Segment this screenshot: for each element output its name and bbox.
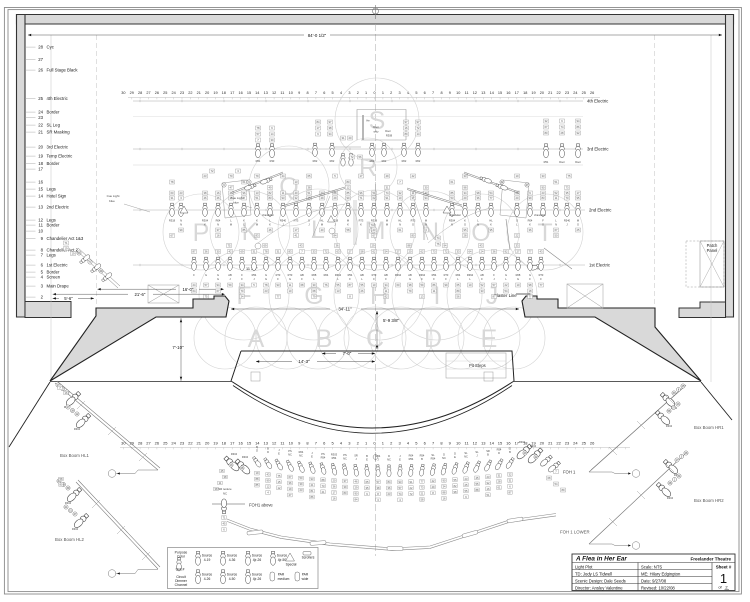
svg-text:NC: NC	[223, 492, 227, 496]
svg-text:G: G	[409, 277, 411, 281]
svg-text:25: 25	[577, 228, 580, 232]
svg-text:T: T	[537, 219, 552, 247]
svg-text:R04: R04	[324, 273, 329, 277]
svg-text:R54: R54	[348, 273, 353, 277]
svg-text:23: 23	[321, 191, 324, 195]
svg-text:Source: Source	[227, 554, 238, 558]
svg-text:11: 11	[385, 289, 388, 293]
svg-text:ME: Hilary Edgington: ME: Hilary Edgington	[641, 571, 681, 576]
svg-text:15: 15	[38, 187, 43, 192]
svg-text:89: 89	[405, 132, 408, 136]
svg-text:24: 24	[573, 441, 578, 446]
svg-text:R73: R73	[411, 219, 416, 223]
svg-text:R54: R54	[321, 455, 326, 459]
svg-text:98: 98	[477, 191, 480, 195]
svg-text:E: E	[454, 455, 456, 459]
svg-text:20: 20	[333, 479, 336, 483]
svg-text:R308: R308	[386, 134, 393, 138]
svg-text:13: 13	[38, 205, 43, 210]
svg-text:93: 93	[311, 477, 314, 481]
svg-text:85: 85	[451, 191, 454, 195]
svg-text:86: 86	[577, 125, 580, 129]
svg-text:N: N	[180, 223, 182, 227]
svg-text:R04: R04	[456, 273, 461, 277]
svg-text:R304: R304	[74, 427, 81, 431]
svg-text:73: 73	[433, 250, 436, 254]
svg-text:67: 67	[555, 228, 558, 232]
svg-text:Date: 9/27/08: Date: 9/27/08	[641, 578, 667, 583]
svg-text:30: 30	[217, 250, 220, 254]
svg-text:24: 24	[171, 91, 175, 95]
svg-text:3rd Electric: 3rd Electric	[47, 145, 69, 150]
svg-text:R318: R318	[169, 219, 176, 223]
svg-text:P: P	[193, 219, 210, 247]
svg-text:35: 35	[366, 486, 369, 490]
svg-text:65: 65	[308, 174, 311, 178]
svg-text:51: 51	[308, 191, 311, 195]
svg-text:17: 17	[295, 228, 298, 232]
svg-text:75: 75	[228, 244, 231, 248]
svg-text:16: 16	[487, 487, 490, 491]
svg-text:R08: R08	[312, 273, 317, 277]
svg-text:14: 14	[490, 91, 494, 95]
svg-text:R51: R51	[544, 160, 549, 164]
svg-text:33: 33	[457, 250, 460, 254]
svg-text:36: 36	[477, 196, 480, 200]
svg-text:77: 77	[490, 196, 493, 200]
svg-text:G: G	[217, 277, 219, 281]
svg-text:11: 11	[219, 481, 222, 485]
svg-text:82: 82	[269, 191, 272, 195]
svg-text:E: E	[481, 325, 498, 353]
svg-text:Box Boom HR2: Box Boom HR2	[694, 498, 724, 503]
svg-text:86: 86	[311, 495, 314, 499]
svg-text:10: 10	[289, 91, 293, 95]
svg-text:67: 67	[289, 475, 292, 479]
svg-text:chandelier: chandelier	[262, 213, 274, 217]
svg-text:R73: R73	[288, 273, 293, 277]
svg-text:67: 67	[171, 234, 174, 238]
svg-text:SR: SR	[354, 454, 358, 458]
svg-text:75: 75	[568, 174, 571, 178]
svg-text:2: 2	[390, 91, 392, 95]
svg-text:TD: Jody LS Tidwell: TD: Jody LS Tidwell	[575, 571, 612, 576]
svg-text:3rd Electric: 3rd Electric	[587, 147, 609, 152]
svg-text:28: 28	[561, 131, 564, 135]
svg-text:14: 14	[255, 441, 260, 446]
svg-text:R73: R73	[359, 219, 364, 223]
svg-text:97: 97	[417, 120, 420, 124]
svg-text:13: 13	[481, 441, 486, 446]
svg-text:Screen: Screen	[47, 275, 61, 280]
svg-text:E: E	[311, 455, 313, 459]
svg-text:77: 77	[529, 295, 532, 299]
svg-text:27: 27	[397, 250, 400, 254]
svg-text:10: 10	[289, 441, 294, 446]
svg-text:11: 11	[289, 283, 292, 287]
svg-text:38: 38	[224, 475, 227, 479]
svg-text:80: 80	[412, 234, 415, 238]
svg-text:36: 36	[388, 486, 391, 490]
svg-text:26: 26	[38, 68, 43, 73]
svg-text:73: 73	[421, 486, 424, 490]
svg-text:HB: HB	[360, 273, 364, 277]
svg-text:wkly: wkly	[373, 130, 379, 134]
svg-text:38: 38	[204, 191, 207, 195]
svg-text:26: 26	[590, 441, 595, 446]
svg-text:32: 32	[545, 119, 548, 123]
svg-text:25: 25	[582, 91, 586, 95]
svg-text:5'-9 3/8": 5'-9 3/8"	[383, 318, 400, 323]
svg-text:51: 51	[487, 493, 490, 497]
svg-text:D: D	[267, 450, 269, 454]
svg-text:10: 10	[516, 174, 519, 178]
svg-text:74: 74	[386, 191, 389, 195]
svg-text:blue: blue	[109, 199, 115, 203]
svg-text:33: 33	[481, 289, 484, 293]
svg-text:36: 36	[205, 250, 208, 254]
svg-text:26: 26	[155, 91, 159, 95]
svg-text:20: 20	[540, 91, 544, 95]
svg-text:M: M	[321, 223, 323, 227]
svg-text:G: G	[517, 277, 519, 281]
svg-text:1: 1	[365, 91, 367, 95]
svg-text:G: G	[505, 273, 507, 277]
svg-text:O: O	[471, 219, 490, 247]
svg-text:A: A	[248, 325, 265, 353]
svg-text:97: 97	[405, 120, 408, 124]
svg-text:HL: HL	[489, 219, 493, 223]
svg-text:11: 11	[555, 196, 558, 200]
svg-text:K: K	[490, 223, 492, 227]
svg-text:29: 29	[334, 196, 337, 200]
svg-text:17: 17	[317, 126, 320, 130]
svg-text:5'-6": 5'-6"	[64, 296, 73, 301]
svg-text:R02: R02	[416, 159, 421, 163]
svg-text:Border: Border	[47, 223, 60, 228]
svg-text:R73: R73	[539, 273, 544, 277]
svg-text:51: 51	[555, 180, 558, 184]
svg-text:63: 63	[337, 250, 340, 254]
svg-text:D: D	[509, 446, 511, 450]
svg-text:60: 60	[171, 191, 174, 195]
svg-text:80: 80	[545, 131, 548, 135]
svg-text:87: 87	[349, 283, 352, 287]
svg-text:19: 19	[213, 91, 217, 95]
svg-text:22: 22	[505, 283, 508, 287]
svg-text:A Flea in Her Ear: A Flea in Her Ear	[575, 556, 627, 563]
svg-text:11: 11	[433, 289, 436, 293]
svg-text:72: 72	[417, 126, 420, 130]
svg-text:58: 58	[60, 477, 63, 481]
svg-text:chandelier: chandelier	[449, 213, 461, 217]
svg-text:14: 14	[417, 132, 420, 136]
svg-text:10: 10	[456, 441, 461, 446]
svg-text:23: 23	[487, 475, 490, 479]
svg-text:N: N	[180, 219, 182, 223]
svg-text:32: 32	[295, 196, 298, 200]
svg-text:42: 42	[432, 479, 435, 483]
svg-text:13: 13	[337, 289, 340, 293]
svg-text:52: 52	[481, 283, 484, 287]
svg-text:25: 25	[38, 96, 43, 101]
svg-text:R02: R02	[370, 159, 375, 163]
svg-text:SL Leg: SL Leg	[47, 123, 61, 128]
svg-text:64: 64	[469, 250, 472, 254]
svg-text:R303: R303	[331, 453, 338, 457]
svg-text:B: B	[256, 445, 258, 449]
svg-text:N: N	[425, 223, 427, 227]
svg-text:R304: R304	[242, 455, 249, 459]
svg-text:59: 59	[421, 283, 424, 287]
svg-text:27: 27	[146, 441, 151, 446]
svg-text:Channel: Channel	[175, 583, 188, 587]
svg-text:D: D	[256, 449, 258, 453]
svg-text:34: 34	[241, 283, 244, 287]
svg-text:38: 38	[409, 283, 412, 287]
svg-text:49: 49	[432, 485, 435, 489]
svg-text:36: 36	[289, 481, 292, 485]
svg-text:93: 93	[282, 196, 285, 200]
svg-text:HB: HB	[300, 273, 304, 277]
svg-text:Source: Source	[227, 573, 238, 577]
svg-text:R02: R02	[402, 159, 407, 163]
svg-text:86: 86	[433, 283, 436, 287]
svg-text:19: 19	[65, 247, 68, 251]
svg-text:13: 13	[264, 91, 268, 95]
svg-text:R304: R304	[666, 424, 673, 428]
svg-text:22: 22	[556, 441, 561, 446]
svg-text:43: 43	[267, 473, 270, 477]
svg-text:91: 91	[386, 196, 389, 200]
svg-text:87: 87	[193, 250, 196, 254]
svg-text:84: 84	[355, 498, 358, 502]
svg-text:15: 15	[498, 441, 503, 446]
svg-text:Hotel Sign: Hotel Sign	[47, 194, 67, 199]
svg-text:1st Electric: 1st Electric	[47, 263, 69, 268]
svg-text:36: 36	[333, 485, 336, 489]
svg-text:12: 12	[267, 485, 270, 489]
svg-text:99: 99	[267, 479, 270, 483]
svg-text:77: 77	[421, 480, 424, 484]
svg-text:31: 31	[342, 136, 345, 140]
svg-text:19: 19	[256, 471, 259, 475]
svg-text:22: 22	[188, 441, 193, 446]
svg-text:79: 79	[256, 174, 259, 178]
svg-text:4: 4	[340, 91, 342, 95]
svg-text:R02: R02	[382, 159, 387, 163]
svg-text:49: 49	[269, 186, 272, 190]
svg-text:R304: R304	[519, 440, 526, 444]
svg-text:34: 34	[385, 283, 388, 287]
svg-text:91: 91	[410, 480, 413, 484]
svg-text:G: G	[516, 219, 518, 223]
svg-text:78: 78	[171, 180, 174, 184]
svg-text:7: 7	[432, 91, 434, 95]
svg-text:88: 88	[256, 477, 259, 481]
svg-text:81: 81	[311, 489, 314, 493]
svg-text:11: 11	[39, 223, 44, 228]
svg-text:22: 22	[556, 91, 560, 95]
svg-text:72: 72	[351, 155, 354, 159]
svg-text:78: 78	[257, 126, 260, 130]
svg-text:83: 83	[542, 196, 545, 200]
svg-text:83: 83	[256, 234, 259, 238]
svg-text:G: G	[529, 273, 531, 277]
svg-text:AB: AB	[480, 273, 484, 277]
svg-text:FOH1 above: FOH1 above	[249, 503, 273, 508]
svg-text:2nd Electric: 2nd Electric	[589, 208, 612, 213]
svg-text:HL: HL	[320, 219, 324, 223]
svg-text:16: 16	[38, 180, 43, 185]
svg-text:50: 50	[300, 476, 303, 480]
svg-text:92: 92	[487, 481, 490, 485]
svg-text:20: 20	[464, 196, 467, 200]
svg-text:34'-11": 34'-11"	[338, 307, 352, 312]
svg-text:Special: Special	[286, 563, 297, 567]
svg-text:NC: NC	[464, 454, 468, 458]
svg-text:Temp Electric: Temp Electric	[47, 154, 74, 159]
svg-text:19: 19	[38, 154, 43, 159]
svg-text:7: 7	[315, 91, 317, 95]
svg-text:10: 10	[289, 289, 292, 293]
svg-text:29: 29	[355, 486, 358, 490]
svg-text:71: 71	[65, 241, 68, 245]
svg-text:13: 13	[421, 295, 424, 299]
svg-text:94: 94	[444, 244, 447, 248]
svg-text:55: 55	[454, 478, 457, 482]
svg-text:65: 65	[457, 283, 460, 287]
svg-text:R73: R73	[372, 273, 377, 277]
svg-text:26: 26	[155, 441, 160, 446]
svg-text:84: 84	[317, 120, 320, 124]
svg-text:17: 17	[230, 441, 235, 446]
svg-text:Door: Door	[575, 160, 581, 164]
svg-text:76: 76	[437, 242, 440, 246]
svg-text:R304: R304	[530, 444, 537, 448]
svg-text:K: K	[464, 219, 466, 223]
svg-text:80: 80	[347, 180, 350, 184]
svg-text:70: 70	[230, 174, 233, 178]
svg-text:79: 79	[313, 295, 316, 299]
svg-text:17: 17	[333, 491, 336, 495]
svg-text:Border: Border	[47, 110, 60, 115]
svg-text:15: 15	[498, 91, 502, 95]
svg-text:17: 17	[230, 91, 234, 95]
svg-text:E: E	[278, 451, 280, 455]
svg-text:K: K	[347, 223, 349, 227]
svg-text:15: 15	[247, 91, 251, 95]
svg-text:31: 31	[253, 250, 256, 254]
svg-text:65: 65	[366, 480, 369, 484]
svg-text:12: 12	[473, 91, 477, 95]
svg-text:4-36: 4-36	[229, 558, 236, 562]
svg-text:He: He	[366, 119, 370, 123]
svg-text:49: 49	[321, 196, 324, 200]
svg-text:12: 12	[473, 441, 478, 446]
svg-text:4-19: 4-19	[204, 558, 211, 562]
svg-text:46: 46	[204, 196, 207, 200]
svg-text:13: 13	[256, 191, 259, 195]
svg-text:27: 27	[517, 250, 520, 254]
svg-text:41: 41	[311, 483, 314, 487]
svg-text:93: 93	[399, 480, 402, 484]
svg-text:23: 23	[565, 91, 569, 95]
svg-text:18: 18	[523, 91, 527, 95]
svg-text:D: D	[424, 325, 442, 353]
svg-text:37: 37	[217, 228, 220, 232]
svg-text:50: 50	[555, 234, 558, 238]
svg-text:7'-0": 7'-0"	[343, 351, 352, 356]
svg-text:68: 68	[548, 476, 551, 480]
svg-text:74: 74	[399, 492, 402, 496]
svg-text:E: E	[366, 457, 368, 461]
svg-text:33: 33	[464, 174, 467, 178]
svg-text:44: 44	[282, 174, 285, 178]
svg-text:22: 22	[38, 123, 43, 128]
svg-text:G: G	[308, 219, 310, 223]
svg-text:Cyc: Cyc	[47, 45, 55, 50]
svg-text:1: 1	[382, 91, 384, 95]
svg-text:55: 55	[337, 283, 340, 287]
svg-text:47: 47	[289, 493, 292, 497]
svg-text:R54: R54	[252, 273, 257, 277]
svg-text:29: 29	[130, 91, 134, 95]
svg-text:53: 53	[451, 196, 454, 200]
svg-text:80: 80	[60, 483, 63, 487]
svg-text:NC: NC	[299, 454, 303, 458]
svg-text:58: 58	[361, 250, 364, 254]
svg-text:20: 20	[409, 250, 412, 254]
svg-text:57: 57	[205, 283, 208, 287]
svg-text:16: 16	[405, 126, 408, 130]
svg-text:14: 14	[271, 132, 274, 136]
svg-text:R08: R08	[516, 273, 521, 277]
svg-text:R304: R304	[65, 501, 72, 505]
svg-text:23: 23	[180, 441, 185, 446]
svg-text:10: 10	[38, 229, 43, 234]
svg-text:4-50: 4-50	[229, 577, 236, 581]
svg-text:12: 12	[347, 186, 350, 190]
svg-text:34: 34	[443, 485, 446, 489]
svg-text:M: M	[256, 223, 258, 227]
svg-text:45: 45	[221, 469, 224, 473]
svg-text:23: 23	[388, 492, 391, 496]
svg-text:90: 90	[443, 479, 446, 483]
svg-text:Door: Door	[559, 160, 565, 164]
svg-text:B: B	[421, 457, 423, 461]
svg-text:R54: R54	[431, 456, 436, 460]
svg-text:18: 18	[38, 161, 43, 166]
svg-text:SR: SR	[486, 449, 490, 453]
svg-text:72: 72	[445, 250, 448, 254]
svg-text:16: 16	[238, 91, 242, 95]
svg-text:24: 24	[573, 91, 577, 95]
svg-text:19: 19	[72, 252, 75, 256]
svg-text:19: 19	[289, 487, 292, 491]
svg-text:Box Boom HL2: Box Boom HL2	[55, 537, 85, 542]
svg-text:4jr-26: 4jr-26	[253, 577, 262, 581]
svg-text:8: 8	[306, 91, 308, 95]
svg-text:0: 0	[373, 91, 375, 95]
svg-text:6: 6	[424, 91, 426, 95]
svg-text:17: 17	[515, 91, 519, 95]
svg-text:85: 85	[347, 191, 350, 195]
svg-text:79: 79	[409, 289, 412, 293]
svg-text:G: G	[205, 273, 207, 277]
svg-text:N: N	[399, 223, 401, 227]
svg-text:N: N	[217, 223, 219, 227]
